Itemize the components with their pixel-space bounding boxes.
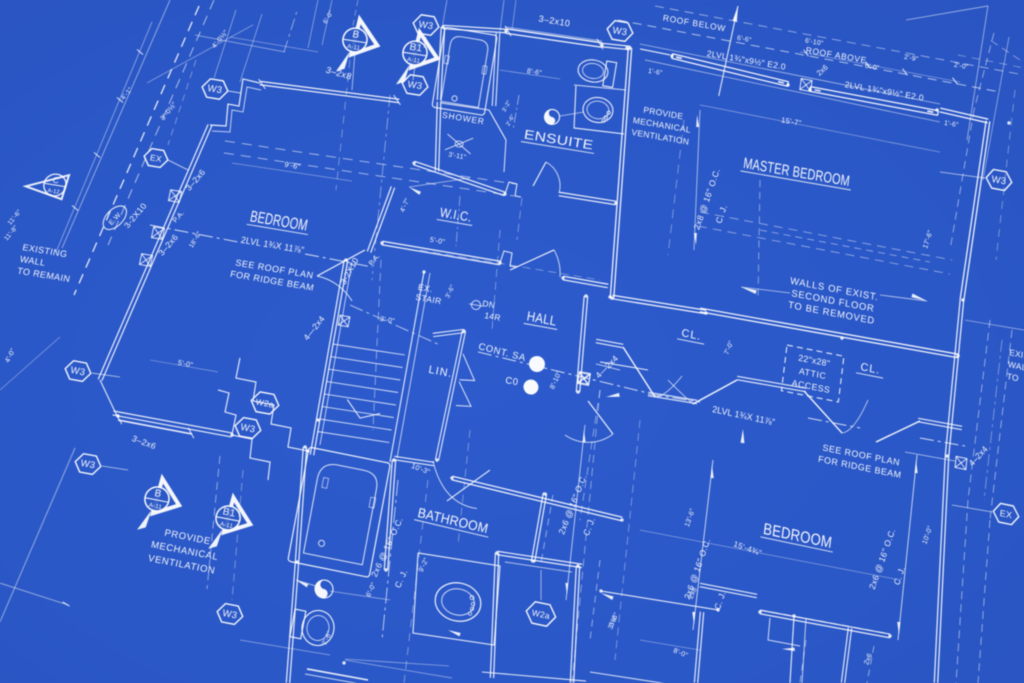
svg-text:B1: B1: [409, 42, 424, 55]
svg-text:W3: W3: [407, 79, 424, 92]
svg-text:W3: W3: [206, 83, 223, 96]
svg-text:EX: EX: [149, 152, 163, 164]
svg-text:W3: W3: [418, 19, 435, 32]
svg-text:C0: C0: [504, 375, 519, 388]
svg-text:W3: W3: [612, 25, 628, 38]
